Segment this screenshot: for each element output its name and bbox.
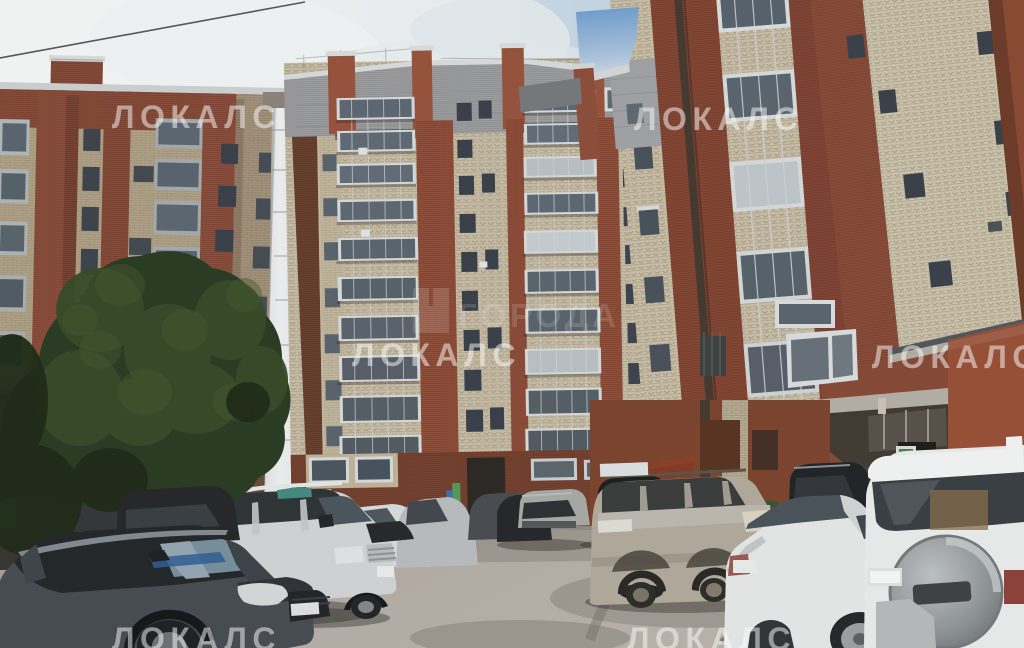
svg-text:ЛОКАЛС: ЛОКАЛС <box>112 621 281 648</box>
svg-text:ЛОКАЛС: ЛОКАЛС <box>112 99 281 135</box>
svg-text:ЛОКАЛС: ЛОКАЛС <box>627 621 796 648</box>
svg-text:ГОРОДА: ГОРОДА <box>458 297 620 334</box>
svg-text:ЛОКАЛС: ЛОКАЛС <box>872 339 1024 375</box>
svg-text:ЛОКАЛС: ЛОКАЛС <box>352 337 521 373</box>
svg-text:ЛОКАЛС: ЛОКАЛС <box>634 101 803 137</box>
